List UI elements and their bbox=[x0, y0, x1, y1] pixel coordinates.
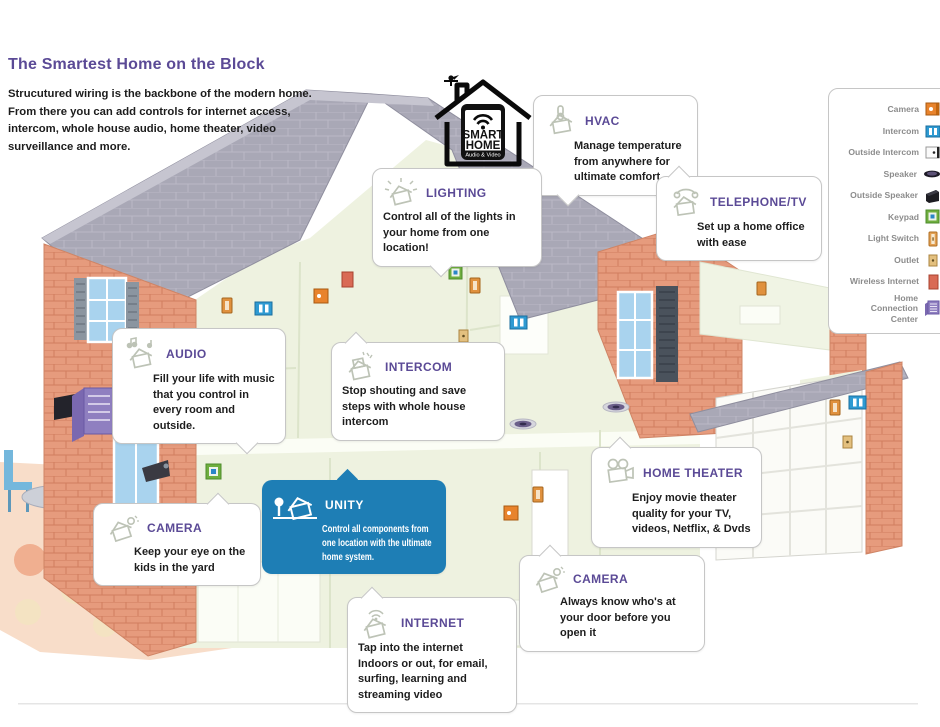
outlet-icon bbox=[925, 253, 940, 268]
callout-title: UNITY bbox=[325, 498, 364, 512]
telephone-house-icon bbox=[667, 185, 703, 219]
unity-house-icon bbox=[272, 488, 318, 522]
outside-speaker-icon bbox=[924, 188, 940, 204]
logo-banner: Audio & Video bbox=[465, 153, 500, 159]
callout-lighting: LIGHTING Control all of the lights in yo… bbox=[372, 168, 542, 267]
callout-home-theater: HOME THEATER Enjoy movie theater quality… bbox=[591, 447, 762, 548]
callout-audio: AUDIO Fill your life with music that you… bbox=[112, 328, 286, 444]
callout-text: Control all components from one location… bbox=[322, 523, 433, 565]
callout-title: HOME THEATER bbox=[643, 466, 743, 480]
logo-line2: HOME bbox=[466, 140, 501, 152]
legend-label: Keypad bbox=[888, 212, 919, 223]
legend-row: Keypad bbox=[837, 207, 940, 229]
left-brick-wall bbox=[44, 244, 196, 656]
callout-text: Stop shouting and save steps with whole … bbox=[342, 384, 494, 431]
legend-row: Home Connection Center bbox=[837, 293, 940, 325]
legend-row: Speaker bbox=[837, 164, 940, 186]
legend-label: Wireless Internet bbox=[850, 276, 919, 287]
callout-camera-door: CAMERA Always know who's at your door be… bbox=[519, 555, 705, 652]
legend-row: Outlet bbox=[837, 250, 940, 272]
legend-row: Light Switch bbox=[837, 228, 940, 250]
legend-label: Outside Intercom bbox=[848, 147, 919, 158]
callout-internet: INTERNET Tap into the internet Indoors o… bbox=[347, 597, 517, 713]
intercom-icon bbox=[925, 124, 940, 139]
intercom-house-icon bbox=[342, 351, 378, 383]
legend-row: Intercom bbox=[837, 121, 940, 143]
callout-text: Tap into the internet Indoors or out, fo… bbox=[358, 641, 506, 703]
smart-home-infographic: { "page": { "title": "The Smartest Home … bbox=[0, 0, 940, 727]
lighting-house-icon bbox=[383, 177, 419, 209]
legend-label: Outside Speaker bbox=[850, 190, 918, 201]
legend-label: Camera bbox=[887, 104, 919, 115]
callout-title: HVAC bbox=[585, 114, 620, 128]
intro-text: Strucutured wiring is the backbone of th… bbox=[8, 86, 316, 156]
wifi-house-icon bbox=[358, 606, 394, 640]
callout-text: Enjoy movie theater quality for your TV,… bbox=[632, 491, 751, 538]
callout-telephone-tv: TELEPHONE/TV Set up a home office with e… bbox=[656, 176, 822, 261]
callout-title: AUDIO bbox=[166, 347, 207, 361]
legend-row: Outside Intercom bbox=[837, 142, 940, 164]
callout-unity: UNITY Control all components from one lo… bbox=[262, 480, 446, 574]
callout-title: INTERCOM bbox=[385, 360, 452, 374]
legend-label: Intercom bbox=[883, 126, 919, 137]
callout-title: CAMERA bbox=[573, 572, 628, 586]
legend-label: Home Connection Center bbox=[856, 293, 918, 325]
legend-row: Camera bbox=[837, 99, 940, 121]
callout-title: TELEPHONE/TV bbox=[710, 195, 807, 209]
callout-text: Keep your eye on the kids in the yard bbox=[134, 545, 250, 576]
light-switch-icon bbox=[925, 231, 940, 247]
outside-intercom-icon bbox=[925, 145, 940, 160]
camera-house-icon bbox=[104, 512, 140, 544]
legend-label: Speaker bbox=[884, 169, 917, 180]
camera-icon bbox=[925, 102, 940, 117]
thermostat-house-icon bbox=[544, 104, 578, 138]
page-title: The Smartest Home on the Block bbox=[8, 56, 265, 74]
smart-home-logo: SMART HOME Audio & Video bbox=[430, 72, 536, 177]
legend-row: Outside Speaker bbox=[837, 185, 940, 207]
legend-row: Wireless Internet bbox=[837, 271, 940, 293]
legend-panel: Camera Intercom Outside Intercom Speaker… bbox=[828, 88, 940, 334]
camera-house-icon bbox=[530, 564, 566, 594]
callout-text: Always know who's at your door before yo… bbox=[560, 595, 694, 642]
callout-text: Set up a home office with ease bbox=[697, 220, 811, 251]
home-connection-center-icon bbox=[924, 300, 940, 317]
wireless-internet-icon bbox=[925, 274, 940, 290]
home-connection-center bbox=[72, 388, 114, 442]
movie-camera-icon bbox=[602, 456, 636, 490]
audio-house-icon bbox=[123, 337, 159, 371]
speaker-icon bbox=[923, 167, 940, 181]
keypad-icon bbox=[925, 209, 940, 225]
callout-text: Control all of the lights in your home f… bbox=[383, 210, 531, 257]
callout-intercom: INTERCOM Stop shouting and save steps wi… bbox=[331, 342, 505, 441]
callout-title: CAMERA bbox=[147, 521, 202, 535]
legend-label: Outlet bbox=[894, 255, 919, 266]
legend-label: Light Switch bbox=[868, 233, 919, 244]
callout-title: INTERNET bbox=[401, 616, 464, 630]
callout-title: LIGHTING bbox=[426, 186, 487, 200]
garage-brick-pillar bbox=[866, 362, 902, 554]
callout-camera-yard: CAMERA Keep your eye on the kids in the … bbox=[93, 503, 261, 586]
callout-text: Fill your life with music that you contr… bbox=[153, 372, 275, 434]
